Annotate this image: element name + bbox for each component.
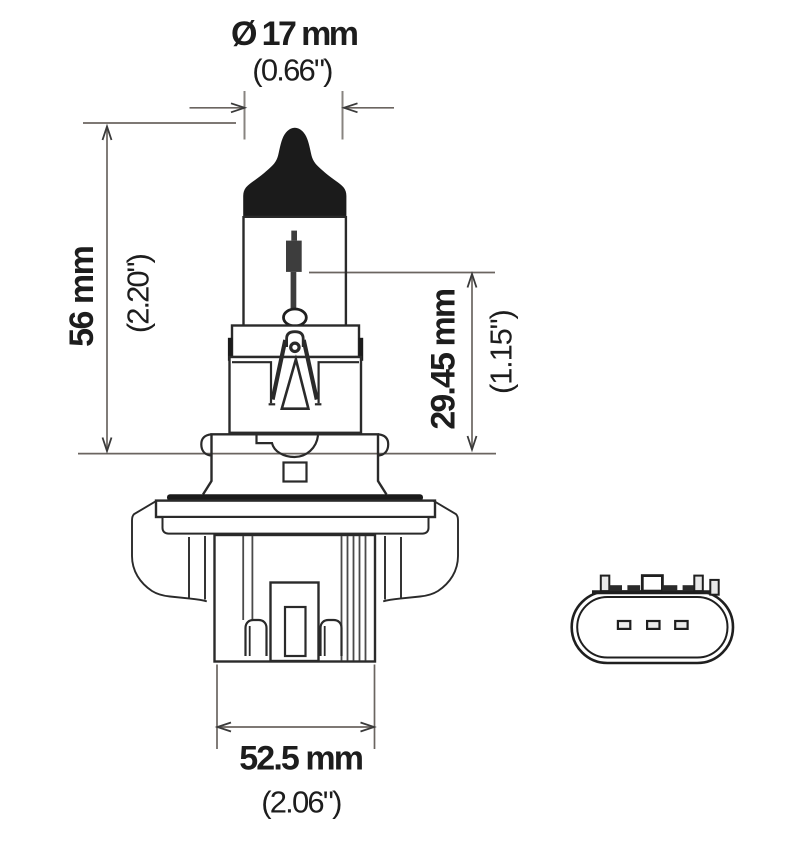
svg-text:(2.06"): (2.06")	[261, 785, 341, 820]
svg-text:52.5 mm: 52.5 mm	[239, 740, 362, 778]
svg-text:56 mm: 56 mm	[63, 246, 101, 346]
svg-text:(0.66"): (0.66")	[252, 53, 332, 88]
svg-text:(2.20"): (2.20")	[120, 254, 155, 333]
svg-text:(1.15"): (1.15")	[483, 310, 518, 394]
svg-text:29.45 mm: 29.45 mm	[424, 289, 462, 429]
svg-text:Ø 17 mm: Ø 17 mm	[231, 15, 358, 53]
